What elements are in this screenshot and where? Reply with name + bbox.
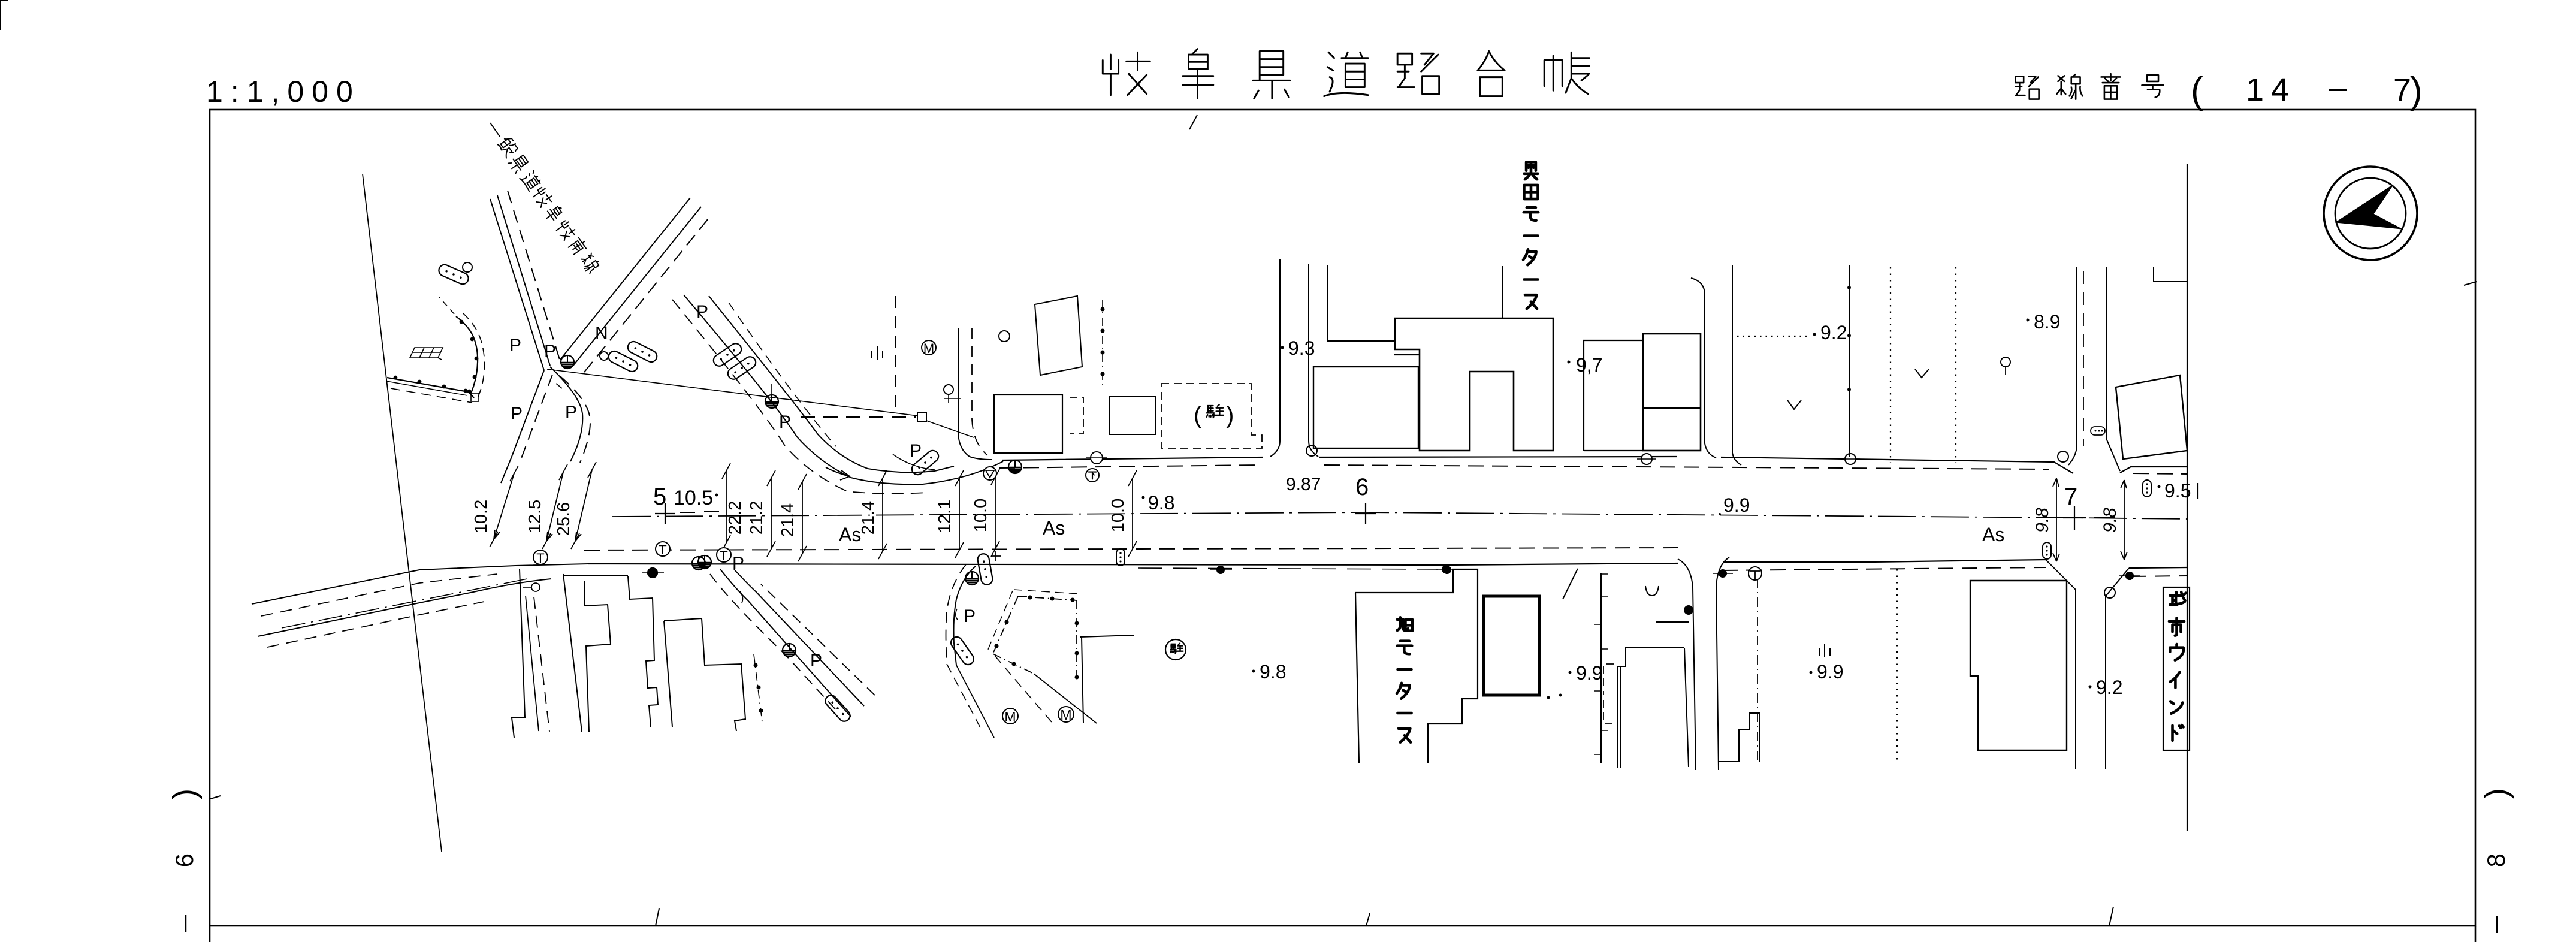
svg-text:9.2: 9.2 — [2096, 677, 2122, 698]
svg-text:9.8: 9.8 — [1148, 492, 1174, 514]
svg-text:8: 8 — [2482, 853, 2510, 867]
svg-text:21.2: 21.2 — [747, 501, 766, 535]
svg-text:10.2: 10.2 — [472, 500, 491, 533]
svg-text:8.9: 8.9 — [2034, 311, 2060, 333]
svg-text:25.6: 25.6 — [554, 502, 573, 536]
svg-text:P: P — [544, 342, 556, 361]
svg-text:22.2: 22.2 — [726, 501, 745, 535]
svg-text:T: T — [536, 551, 544, 566]
svg-text:9.8: 9.8 — [1260, 661, 1286, 683]
svg-text:(: ( — [2483, 788, 2519, 799]
svg-text:P: P — [910, 441, 922, 461]
svg-text:21.4: 21.4 — [778, 503, 798, 537]
svg-text:9.8: 9.8 — [2100, 508, 2120, 533]
svg-text:P: P — [565, 403, 577, 422]
svg-text:M: M — [923, 341, 934, 356]
svg-text:N: N — [595, 324, 608, 343]
svg-text:9.8: 9.8 — [2033, 508, 2052, 533]
svg-text:1:1,000: 1:1,000 — [206, 75, 361, 108]
svg-text:10.0: 10.0 — [971, 499, 990, 532]
svg-text:(: ( — [1194, 402, 1202, 428]
svg-text:21.4: 21.4 — [859, 501, 878, 535]
svg-text:10.5: 10.5 — [674, 487, 713, 509]
svg-text:6: 6 — [1355, 474, 1369, 500]
svg-text:9.9: 9.9 — [1723, 494, 1750, 516]
svg-text:7: 7 — [2064, 484, 2077, 510]
svg-text:): ) — [1226, 402, 1234, 428]
svg-text:T: T — [659, 542, 666, 557]
svg-text:P: P — [509, 336, 521, 355]
svg-text:9.9: 9.9 — [1576, 662, 1602, 684]
svg-text:P: P — [511, 404, 523, 424]
svg-text:T: T — [720, 548, 727, 563]
svg-text:6: 6 — [170, 853, 198, 867]
svg-text:14: 14 — [2246, 72, 2296, 108]
svg-text:): ) — [2410, 70, 2423, 111]
svg-text:(: ( — [171, 789, 207, 799]
svg-text:9,7: 9,7 — [1576, 354, 1602, 376]
svg-text:P: P — [696, 302, 708, 322]
svg-text:–: – — [2329, 70, 2347, 105]
svg-text:9.3: 9.3 — [1288, 337, 1315, 359]
svg-text:M: M — [1004, 709, 1016, 724]
svg-text:M: M — [1060, 707, 1071, 723]
svg-text:9.2: 9.2 — [1820, 322, 1847, 343]
svg-text:As: As — [839, 524, 861, 545]
svg-text:9.87: 9.87 — [1286, 475, 1321, 494]
svg-text:9.9: 9.9 — [1817, 661, 1843, 683]
svg-text:P: P — [732, 554, 744, 573]
svg-text:(: ( — [2191, 70, 2203, 111]
svg-text:As: As — [1982, 524, 2004, 545]
svg-text:P: P — [779, 412, 791, 432]
svg-text:P: P — [964, 606, 976, 626]
svg-text:P: P — [810, 651, 822, 671]
svg-text:10.0: 10.0 — [1109, 499, 1128, 532]
svg-text:As: As — [1043, 517, 1065, 539]
svg-text:7: 7 — [2393, 72, 2411, 108]
svg-text:12.1: 12.1 — [935, 500, 955, 533]
svg-text:12.5: 12.5 — [526, 500, 545, 533]
